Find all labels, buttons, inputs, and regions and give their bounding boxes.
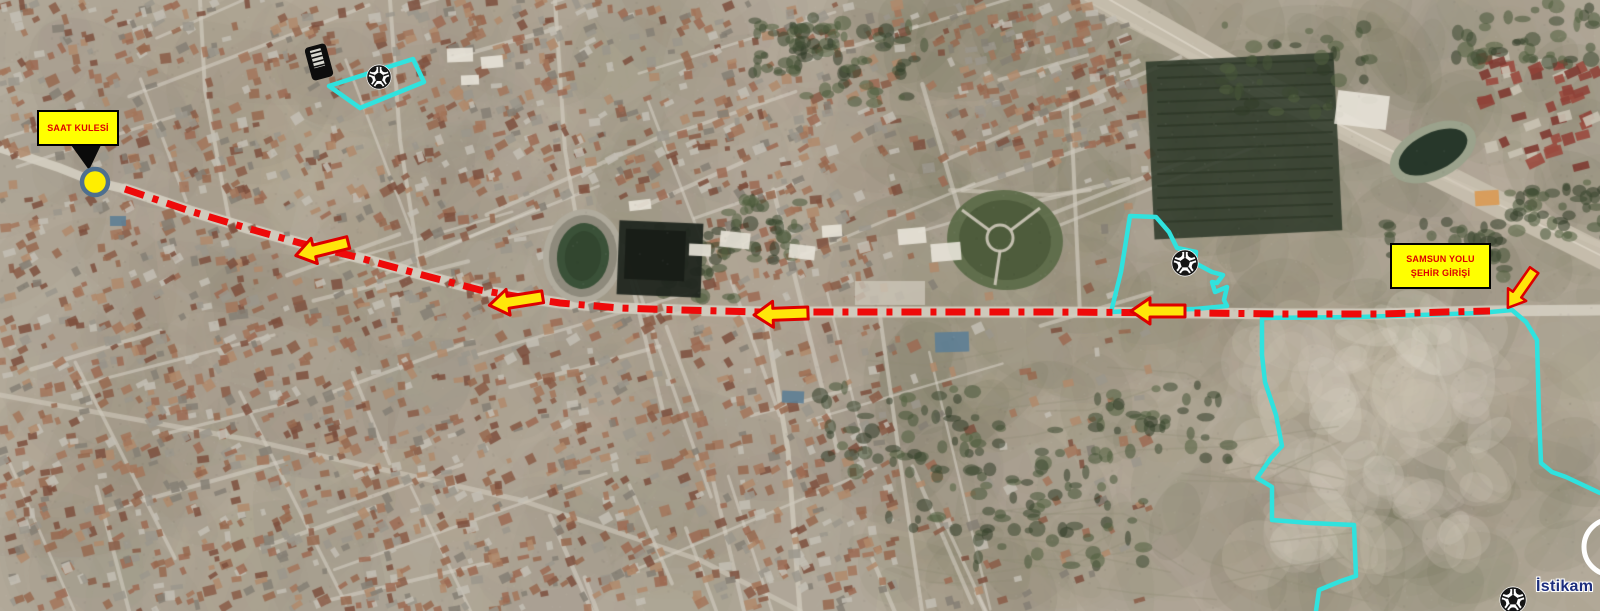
label-pointer-icon — [71, 145, 101, 170]
route-arrow-4-icon — [1131, 298, 1185, 324]
clock-tower-marker — [82, 169, 108, 195]
label-saat-kulesi-text: SAAT KULESİ — [47, 121, 109, 135]
label-samsun-yolu: SAMSUN YOLU ŞEHİR GİRİŞİ — [1390, 243, 1491, 289]
soccer-ball-icon — [1498, 587, 1528, 611]
label-samsun-line1: SAMSUN YOLU — [1406, 252, 1475, 266]
route-arrow-3-icon — [754, 300, 809, 328]
label-saat-kulesi: SAAT KULESİ — [37, 110, 119, 146]
label-samsun-line2: ŞEHİR GİRİŞİ — [1411, 266, 1470, 280]
map-canvas: SAAT KULESİ SAMSUN YOLU ŞEHİR GİRİŞİ İst… — [0, 0, 1600, 611]
route-overlay — [0, 0, 1600, 611]
grandstand-icon — [304, 43, 334, 82]
boundary-facility-area — [1111, 216, 1227, 312]
istikamet-text: İstikam — [1536, 578, 1593, 596]
boundary-east-district — [1257, 310, 1600, 611]
partial-circle-icon — [1584, 519, 1600, 575]
route-arrow-1-icon — [293, 230, 352, 268]
route-arrow-2-icon — [487, 284, 544, 318]
city-entry-arrow-icon — [1499, 264, 1543, 314]
